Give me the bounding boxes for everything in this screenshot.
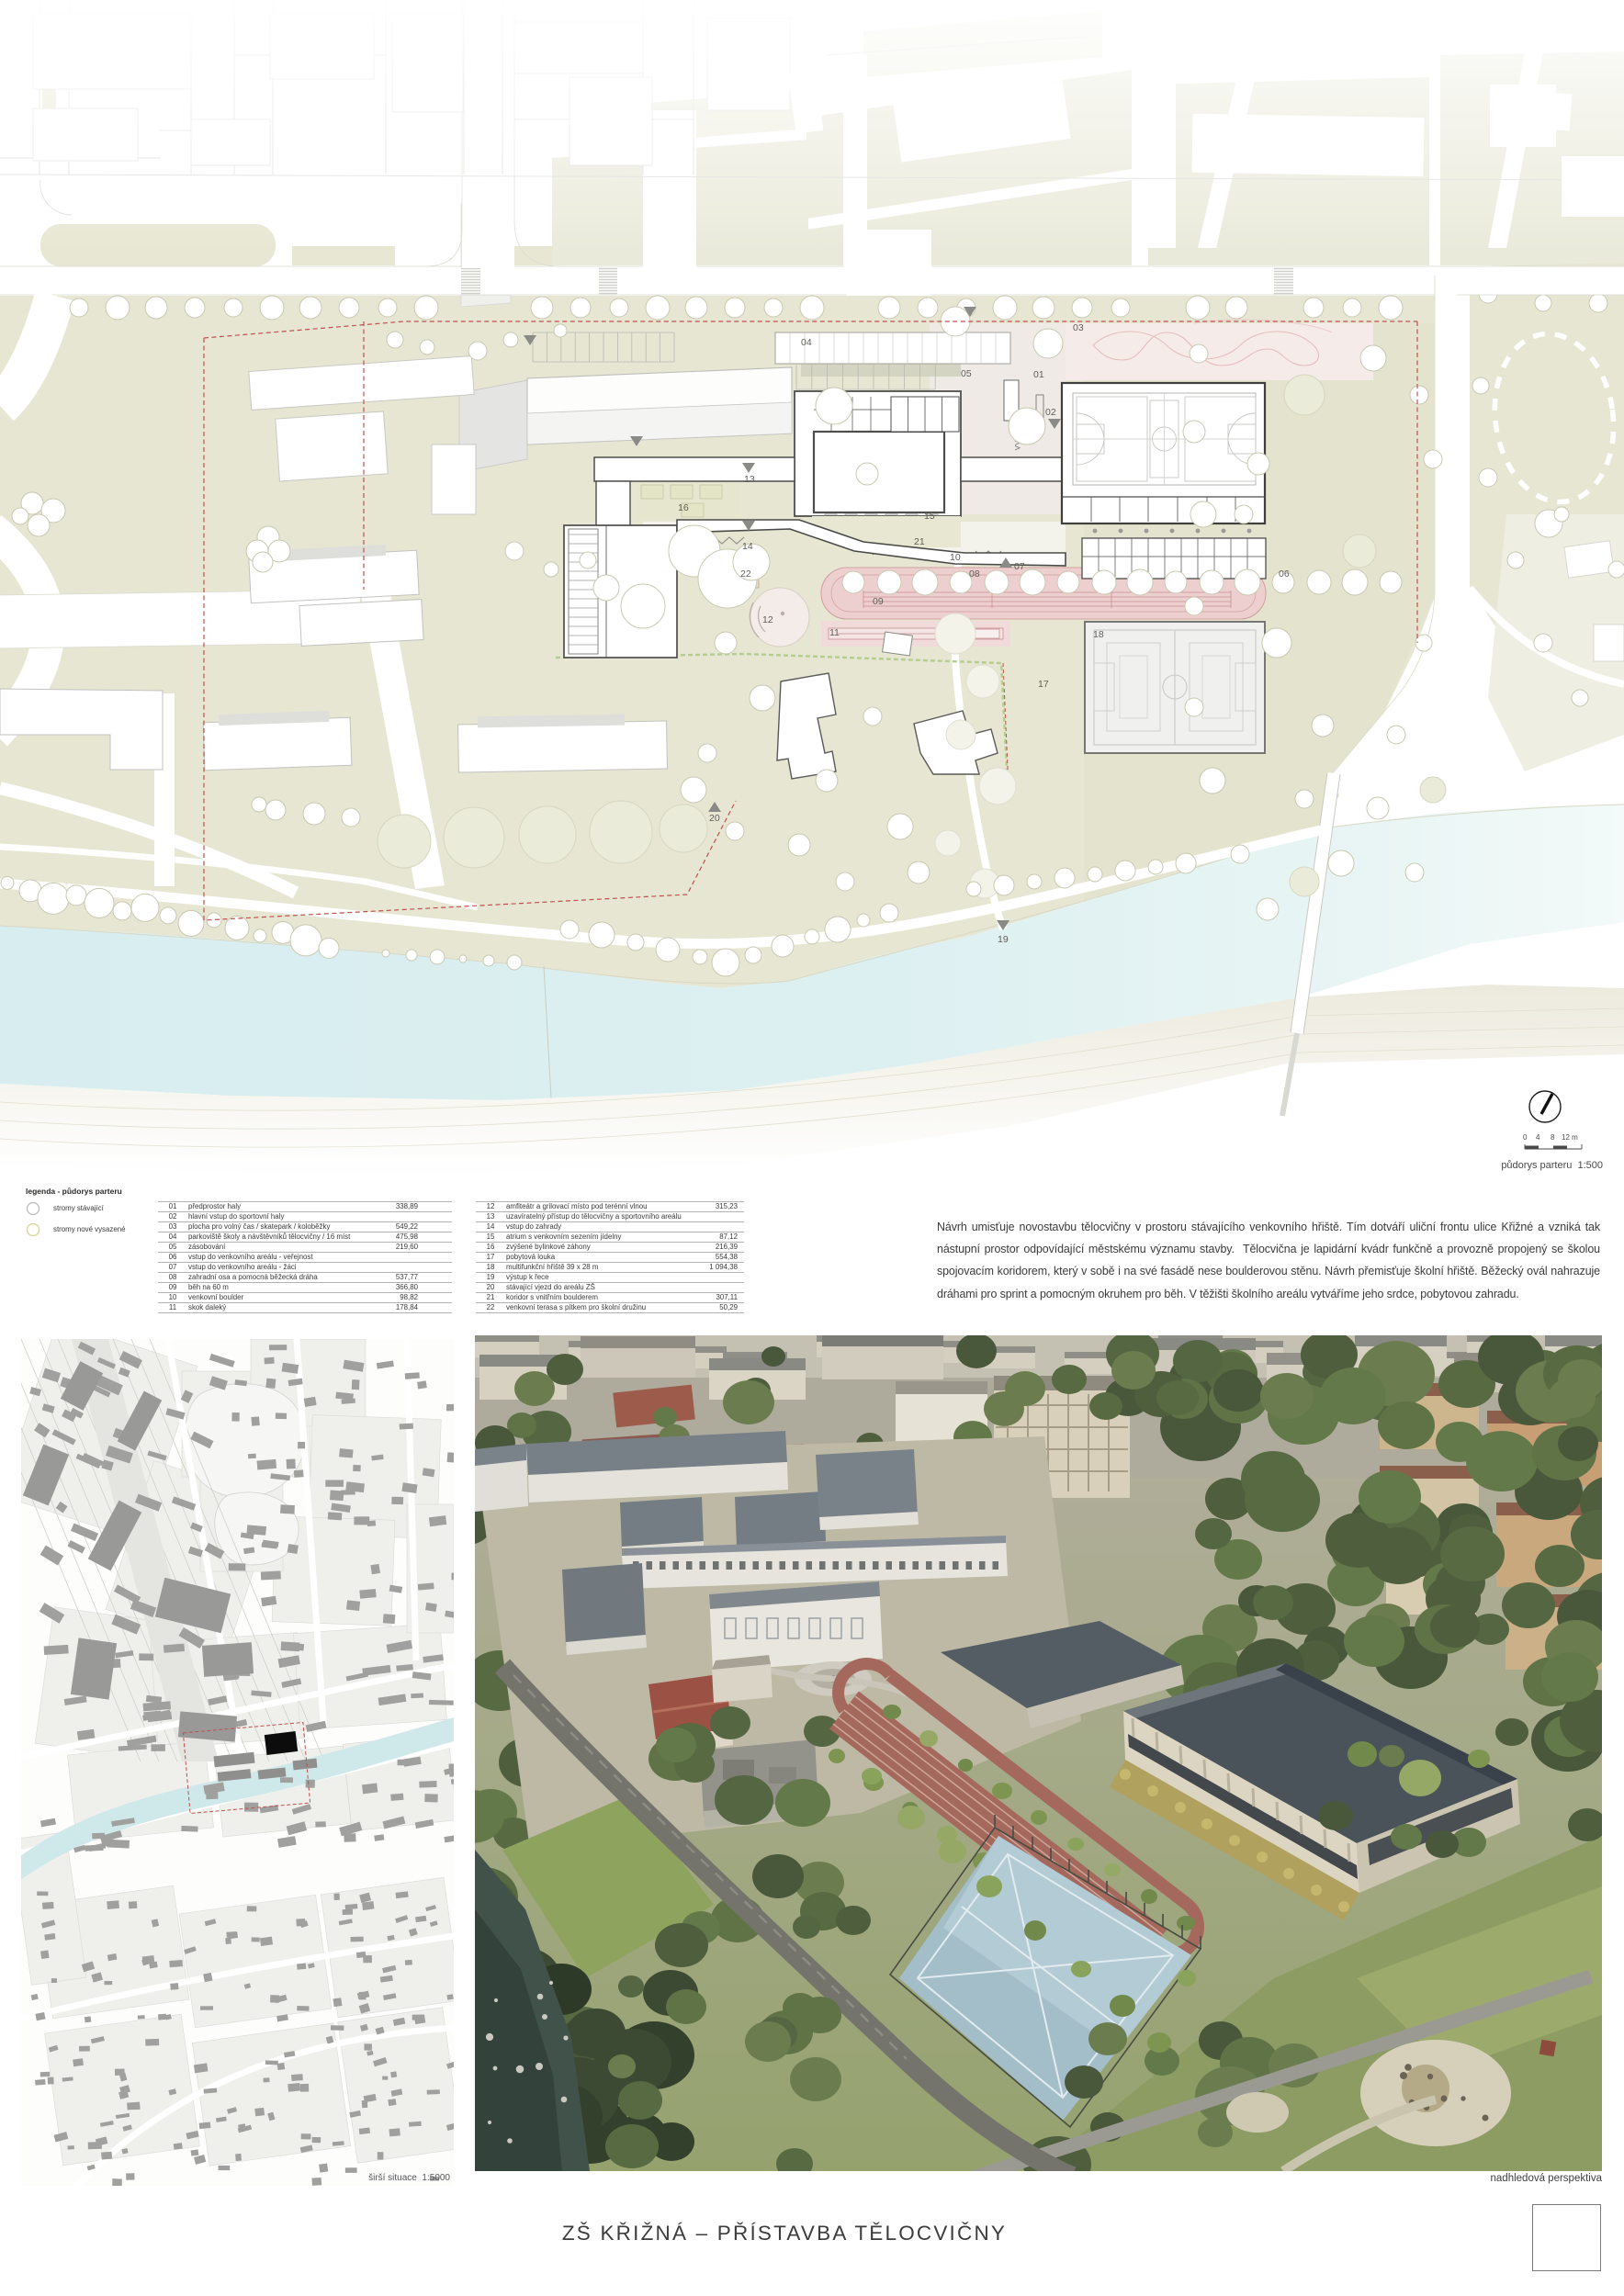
svg-text:09: 09: [873, 596, 884, 607]
svg-text:8: 8: [1551, 1133, 1555, 1142]
svg-text:4: 4: [1536, 1133, 1540, 1142]
svg-text:14: 14: [742, 541, 753, 552]
svg-text:05: 05: [961, 368, 972, 379]
svg-text:15: 15: [924, 511, 935, 522]
svg-text:13: 13: [744, 474, 755, 485]
svg-text:12 m: 12 m: [1562, 1133, 1578, 1142]
svg-text:17: 17: [1038, 679, 1049, 690]
svg-text:03: 03: [1073, 322, 1084, 333]
svg-text:20: 20: [709, 813, 720, 824]
svg-text:19: 19: [998, 934, 1009, 945]
svg-text:21: 21: [914, 536, 925, 547]
svg-text:půdorys parteru 1:500: půdorys parteru 1:500: [1501, 1160, 1603, 1171]
svg-text:12: 12: [762, 614, 773, 625]
svg-text:01: 01: [1033, 369, 1044, 380]
svg-text:07: 07: [1014, 561, 1025, 572]
svg-text:02: 02: [1045, 407, 1056, 418]
svg-text:08: 08: [969, 568, 980, 580]
svg-text:22: 22: [740, 568, 751, 580]
svg-text:16: 16: [678, 502, 689, 513]
svg-text:10: 10: [950, 552, 961, 563]
svg-text:04: 04: [801, 337, 812, 348]
svg-text:18: 18: [1093, 629, 1104, 640]
svg-text:0: 0: [1523, 1133, 1528, 1142]
svg-text:06: 06: [1279, 568, 1290, 580]
svg-text:11: 11: [829, 627, 840, 638]
